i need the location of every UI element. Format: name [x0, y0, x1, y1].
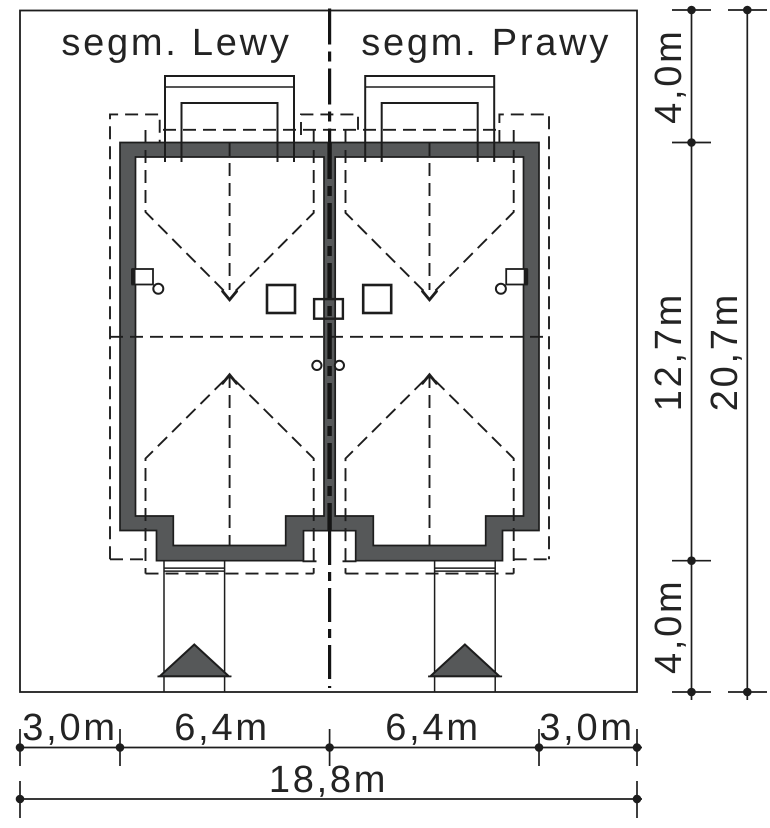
- svg-text:6,4m: 6,4m: [174, 707, 269, 749]
- svg-text:12,7m: 12,7m: [648, 292, 690, 411]
- svg-text:segm. Prawy: segm. Prawy: [361, 22, 611, 64]
- svg-text:segm. Lewy: segm. Lewy: [61, 22, 291, 64]
- svg-text:18,8m: 18,8m: [269, 759, 388, 801]
- svg-text:20,7m: 20,7m: [704, 292, 746, 411]
- svg-text:3,0m: 3,0m: [539, 707, 634, 749]
- svg-text:4,0m: 4,0m: [648, 579, 690, 674]
- svg-text:4,0m: 4,0m: [648, 28, 690, 123]
- svg-text:3,0m: 3,0m: [22, 707, 117, 749]
- svg-text:6,4m: 6,4m: [385, 707, 480, 749]
